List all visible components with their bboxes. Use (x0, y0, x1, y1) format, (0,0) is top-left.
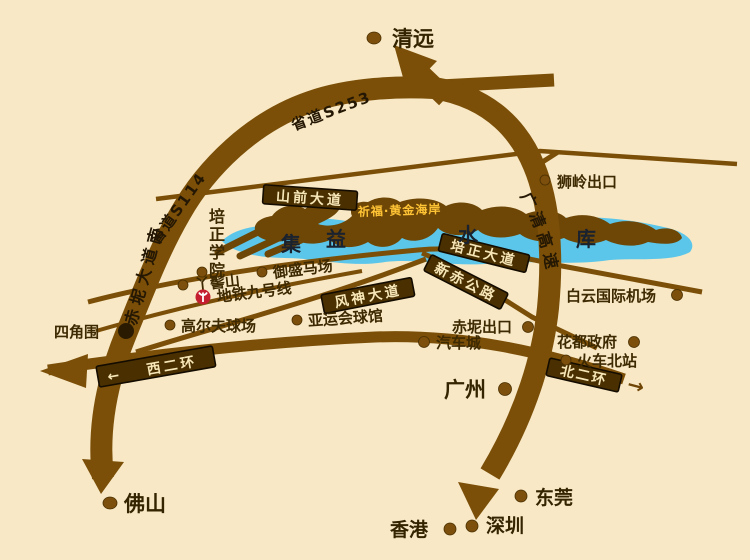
location-map: 省道S253 省道S114 赤坭大道南 广清高速 山前大道 风神大道 培正大道 … (0, 0, 750, 560)
road-shanqian-avenue (156, 151, 737, 199)
auto-city-dot (419, 337, 430, 348)
yusheng-ranch-dot (257, 267, 267, 277)
yaji-mountain-dot (178, 280, 188, 290)
foshan-dot (103, 497, 117, 509)
north-ring-arrow-icon: → (625, 372, 647, 400)
qingyuan-dot (367, 32, 381, 44)
poi-shiling-exit: 狮岭出口 (556, 173, 617, 191)
metro-icon (196, 290, 211, 305)
guangzhou-dot (499, 383, 512, 396)
poi-sijiaowei: 四角围 (54, 323, 99, 341)
city-qingyuan: 清远 (392, 27, 434, 51)
city-shenzhen: 深圳 (486, 514, 524, 537)
huadu-government-dot (629, 337, 640, 348)
golf-course-dot (165, 320, 175, 330)
asian-games-gym-dot (292, 315, 302, 325)
hongkong-dot (444, 523, 456, 535)
peizheng-college-char-2: 正 (209, 225, 225, 244)
reservoir-char-3: 水 (458, 223, 479, 247)
city-foshan: 佛山 (123, 492, 166, 516)
project-name-label: 祈福·黄金海岸 (358, 201, 442, 219)
sijiaowei-junction-dot (118, 323, 134, 339)
city-guangzhou: 广州 (444, 378, 486, 402)
reservoir-char-4: 库 (576, 227, 596, 251)
poi-baiyun-airport: 白云国际机场 (566, 287, 656, 305)
map-canvas: 省道S253 省道S114 赤坭大道南 广清高速 山前大道 风神大道 培正大道 … (0, 0, 750, 560)
west-ring-arrow-icon: ← (106, 367, 123, 385)
west-ring-arrowhead (40, 354, 88, 388)
poi-huadu-government: 花都政府 (557, 333, 617, 351)
city-dongguan: 东莞 (535, 486, 573, 509)
poi-north-railway-station: 火车北站 (577, 352, 637, 370)
svg-text:新赤公路: 新赤公路 (432, 259, 500, 305)
peizheng-college-char-1: 培 (209, 207, 225, 226)
peizheng-college-char-3: 学 (209, 243, 225, 262)
shenzhen-dot (466, 520, 478, 532)
city-hongkong: 香港 (389, 519, 429, 541)
chini-exit-dot (523, 322, 534, 333)
poi-asian-games-gym: 亚运会球馆 (307, 307, 383, 330)
reservoir-char-1: 集 (280, 232, 302, 256)
dongguan-dot (515, 490, 527, 502)
poi-golf-course: 高尔夫球场 (181, 317, 256, 335)
baiyun-airport-dot (672, 290, 683, 301)
reservoir-char-2: 益 (326, 227, 346, 251)
foshan-arrowhead (82, 459, 124, 494)
poi-auto-city: 汽车城 (436, 334, 481, 352)
shiling-exit-dot (540, 175, 550, 185)
north-railway-dot (561, 355, 571, 365)
band-shanqian-avenue: 山前大道 (262, 185, 357, 211)
